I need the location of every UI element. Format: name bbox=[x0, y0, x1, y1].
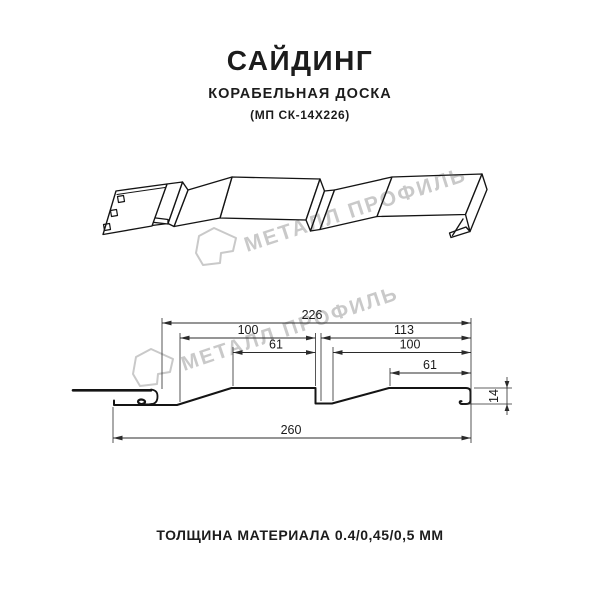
dim-100-left: 100 bbox=[238, 323, 259, 337]
watermark-text-2: МЕТАЛЛ ПРОФИЛЬ bbox=[178, 282, 401, 376]
lock-curl bbox=[138, 400, 151, 405]
dim-100-right: 100 bbox=[400, 338, 421, 352]
dim-61-left: 61 bbox=[269, 338, 283, 352]
material-thickness-label: ТОЛЩИНА МАТЕРИАЛА 0.4/0,45/0,5 ММ bbox=[0, 527, 600, 543]
cross-section-profile bbox=[73, 388, 471, 405]
technical-drawing: МЕТАЛЛ ПРОФИЛЬ МЕТАЛЛ ПРОФИЛЬ bbox=[0, 0, 600, 600]
dim-14: 14 bbox=[487, 389, 501, 403]
dimension-lines bbox=[113, 318, 512, 443]
brand-logo-icon bbox=[133, 349, 173, 386]
product-drawing-page: САЙДИНГ КОРАБЕЛЬНАЯ ДОСКА (МП СК-14Х226) bbox=[0, 0, 600, 600]
profile-outline bbox=[114, 388, 471, 405]
dim-113: 113 bbox=[394, 323, 414, 337]
brand-logo-icon bbox=[196, 228, 236, 265]
dim-226: 226 bbox=[302, 308, 323, 322]
dim-260: 260 bbox=[281, 423, 302, 437]
dim-61-right: 61 bbox=[423, 358, 437, 372]
lock-step bbox=[151, 390, 158, 405]
extension-lines bbox=[113, 318, 512, 443]
watermark-section: МЕТАЛЛ ПРОФИЛЬ bbox=[133, 282, 402, 386]
